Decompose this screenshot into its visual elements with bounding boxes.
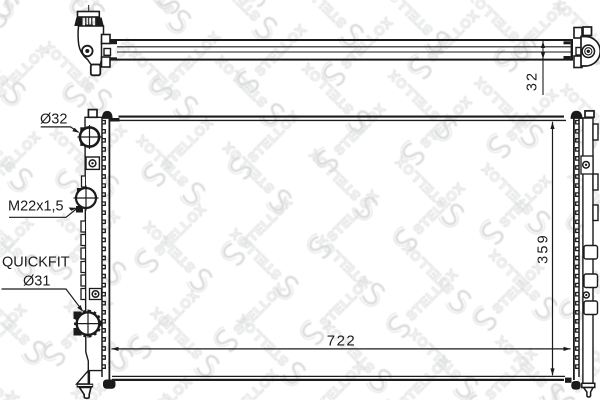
svg-text:Ø32: Ø32 xyxy=(40,112,67,128)
svg-text:359: 359 xyxy=(535,233,551,264)
svg-text:QUICKFIT: QUICKFIT xyxy=(2,255,70,271)
svg-text:Ø31: Ø31 xyxy=(23,274,50,290)
svg-text:32: 32 xyxy=(524,71,540,91)
svg-text:722: 722 xyxy=(327,333,357,350)
svg-text:M22x1,5: M22x1,5 xyxy=(8,199,64,215)
